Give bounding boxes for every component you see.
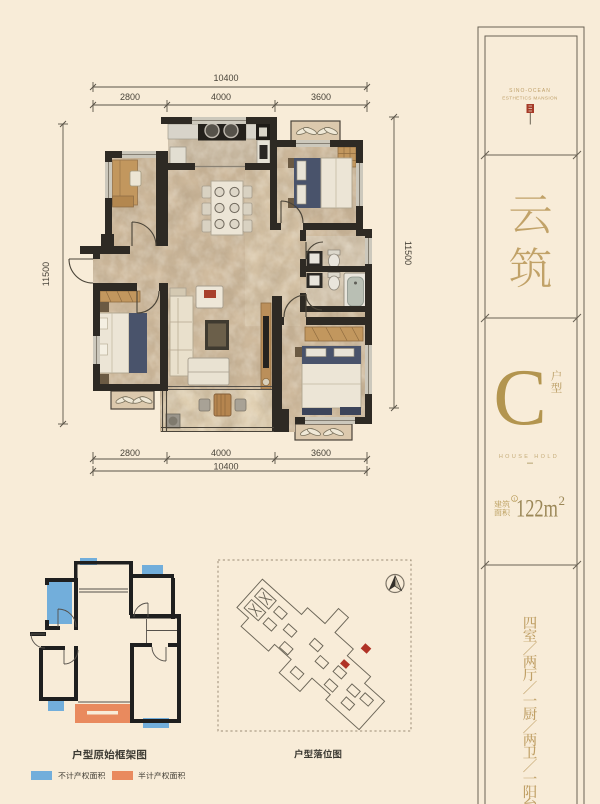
svg-text:2800: 2800 <box>120 448 140 458</box>
svg-text:3600: 3600 <box>311 92 331 102</box>
svg-text:11500: 11500 <box>403 241 413 265</box>
svg-text:SINO-OCEAN: SINO-OCEAN <box>509 88 551 94</box>
svg-text:10400: 10400 <box>213 73 238 83</box>
svg-text:11500: 11500 <box>41 262 51 286</box>
svg-text:4000: 4000 <box>211 92 231 102</box>
svg-text:ESTHETICS MANSION: ESTHETICS MANSION <box>502 96 557 101</box>
svg-text:2: 2 <box>559 493 566 508</box>
svg-text:2800: 2800 <box>120 92 140 102</box>
svg-text:C: C <box>493 354 546 442</box>
svg-text:HOUSE HOLD: HOUSE HOLD <box>499 454 559 460</box>
svg-text:3600: 3600 <box>311 448 331 458</box>
svg-text:4000: 4000 <box>211 448 231 458</box>
svg-text:122m: 122m <box>516 496 558 523</box>
svg-text:10400: 10400 <box>213 462 238 472</box>
